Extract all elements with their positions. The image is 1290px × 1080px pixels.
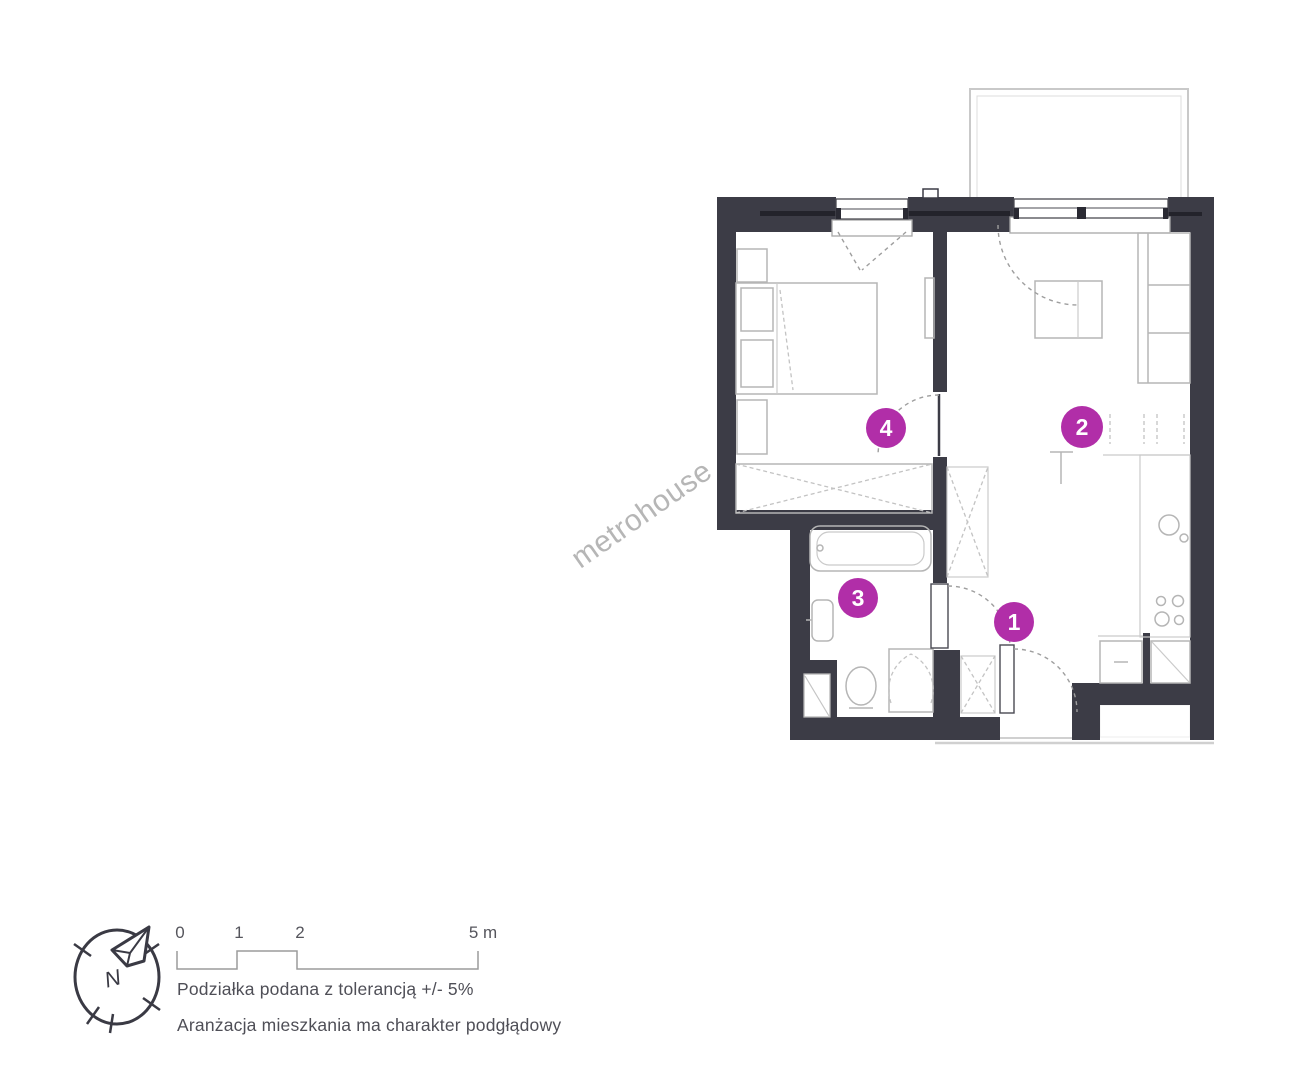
scale-tick-0: 0	[175, 923, 184, 942]
bedroom-furniture	[736, 249, 934, 513]
room-marker-3: 3	[838, 578, 878, 618]
roof-vent	[923, 189, 938, 198]
svg-text:3: 3	[852, 585, 865, 611]
floor-plan-page: 1 2 3 4 N	[0, 0, 1290, 1080]
wall-duct-inset	[804, 674, 830, 717]
svg-text:2: 2	[1076, 414, 1089, 440]
balcony-door-swing	[998, 225, 1078, 305]
compass: N	[74, 927, 160, 1033]
svg-text:1: 1	[1008, 609, 1021, 635]
bedroom-window-tilt	[838, 232, 906, 270]
livingroom-window	[1010, 199, 1170, 233]
scale-tolerance-note: Podziałka podana z tolerancją +/- 5%	[177, 979, 474, 1000]
scale-tick-2: 2	[295, 923, 304, 942]
room-marker-1: 1	[994, 602, 1034, 642]
scale-bar: 0 1 2 5 m	[175, 923, 497, 969]
svg-text:4: 4	[880, 415, 893, 441]
balcony-outline	[970, 89, 1188, 197]
livingroom-furniture	[1035, 233, 1190, 484]
room-marker-2: 2	[1061, 406, 1103, 448]
scale-tick-1: 1	[234, 923, 243, 942]
entrance-door	[1000, 645, 1077, 713]
bedroom-window	[832, 199, 912, 236]
scale-tick-5m: 5 m	[469, 923, 497, 942]
floor-plan-drawing: 1 2 3 4 N	[0, 0, 1290, 1080]
arrangement-note: Aranżacja mieszkania ma charakter podgłą…	[177, 1015, 561, 1036]
room-marker-4: 4	[866, 408, 906, 448]
compass-north-label: N	[102, 964, 124, 992]
